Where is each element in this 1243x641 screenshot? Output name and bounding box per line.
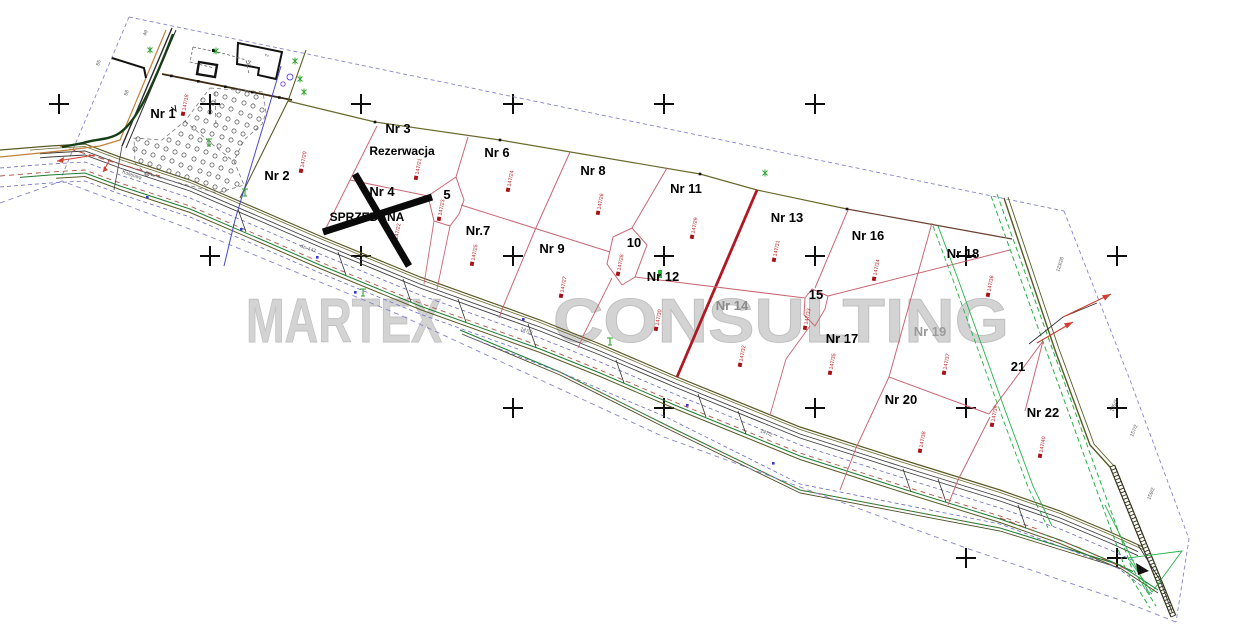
svg-text:Nr 8: Nr 8 <box>580 163 605 178</box>
svg-text:Nr 20: Nr 20 <box>885 392 918 407</box>
svg-text:MARTEX: MARTEX <box>246 287 442 356</box>
svg-text:Nr 22: Nr 22 <box>1027 405 1060 420</box>
svg-text:Nr 19: Nr 19 <box>914 324 947 339</box>
svg-text:5: 5 <box>443 187 450 202</box>
svg-text:Nr 3: Nr 3 <box>385 121 410 136</box>
svg-text:Nr 9: Nr 9 <box>539 241 564 256</box>
svg-text:Nr 16: Nr 16 <box>852 228 885 243</box>
svg-text:Nr 14: Nr 14 <box>716 298 749 313</box>
svg-text:Nr 2: Nr 2 <box>264 168 289 183</box>
svg-text:Nr 6: Nr 6 <box>484 145 509 160</box>
svg-text:Nr 17: Nr 17 <box>826 331 859 346</box>
svg-text:Nr 18: Nr 18 <box>947 246 980 261</box>
svg-text:21: 21 <box>1011 359 1025 374</box>
svg-text:10: 10 <box>627 235 641 250</box>
svg-text:Nr.7: Nr.7 <box>466 223 491 238</box>
svg-text:Rezerwacja: Rezerwacja <box>369 144 435 158</box>
svg-text:Nr 13: Nr 13 <box>771 210 804 225</box>
svg-text:15: 15 <box>809 287 823 302</box>
svg-text:Nr 12: Nr 12 <box>647 269 680 284</box>
svg-text:CONSULTING: CONSULTING <box>553 287 1009 356</box>
svg-text:Nr 4: Nr 4 <box>369 184 395 199</box>
svg-text:Nr 11: Nr 11 <box>670 181 702 196</box>
